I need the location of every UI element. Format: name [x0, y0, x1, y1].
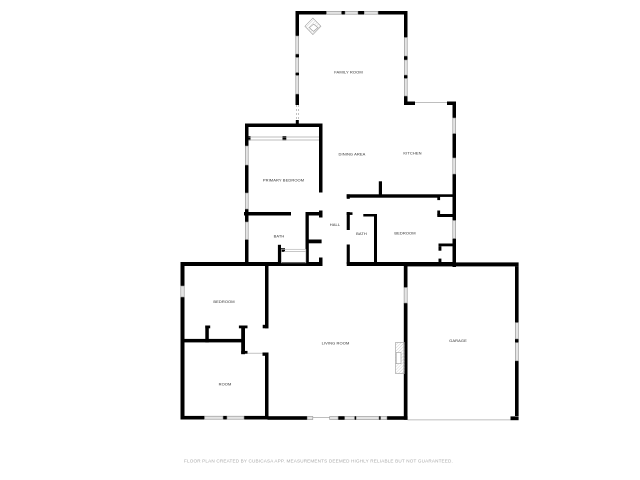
svg-text:FLOOR PLAN CREATED BY CUBICASA: FLOOR PLAN CREATED BY CUBICASA APP. MEAS…: [184, 459, 453, 464]
svg-text:HALL: HALL: [330, 222, 341, 227]
svg-text:DINING AREA: DINING AREA: [339, 152, 366, 157]
svg-text:LIVING ROOM: LIVING ROOM: [322, 341, 350, 346]
svg-text:PRIMARY BEDROOM: PRIMARY BEDROOM: [263, 178, 304, 183]
svg-text:ROOM: ROOM: [219, 382, 232, 387]
svg-text:GARAGE: GARAGE: [449, 338, 467, 343]
svg-text:FAMILY ROOM: FAMILY ROOM: [334, 70, 363, 75]
svg-text:BEDROOM: BEDROOM: [213, 299, 234, 304]
svg-text:KITCHEN: KITCHEN: [403, 151, 421, 156]
svg-text:BATH: BATH: [274, 234, 285, 239]
svg-text:BEDROOM: BEDROOM: [394, 231, 415, 236]
svg-text:BATH: BATH: [356, 231, 367, 236]
